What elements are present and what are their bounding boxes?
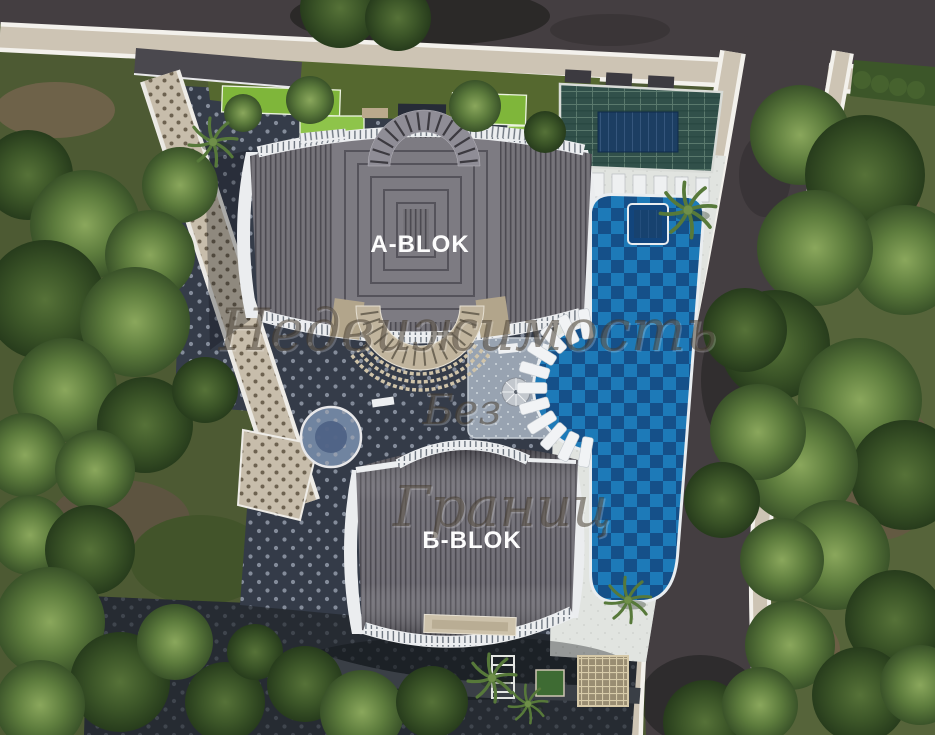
- site-plan-canvas: A-BLOK B-BLOK: [0, 0, 935, 735]
- watermark-line1: Недвижимость: [218, 296, 717, 364]
- watermark-line2: Без: [422, 385, 502, 434]
- site-plan-render: A-BLOK B-BLOK: [0, 0, 935, 735]
- tree: [224, 94, 262, 132]
- tree: [757, 190, 873, 306]
- tree: [740, 518, 824, 602]
- tree: [286, 76, 334, 124]
- tree: [172, 357, 238, 423]
- garden-kiosk: [536, 670, 564, 696]
- pergola: [578, 656, 628, 706]
- entrance-canopy-b: [424, 614, 517, 635]
- skylight: [598, 112, 678, 152]
- jacuzzi: [628, 204, 668, 244]
- tree: [524, 111, 566, 153]
- tree: [684, 462, 760, 538]
- tree: [396, 666, 468, 735]
- tree: [55, 430, 135, 510]
- tree: [449, 80, 501, 132]
- tree: [137, 604, 213, 680]
- block-a-label: A-BLOK: [370, 231, 469, 258]
- watermark-line3: Границ: [392, 475, 611, 540]
